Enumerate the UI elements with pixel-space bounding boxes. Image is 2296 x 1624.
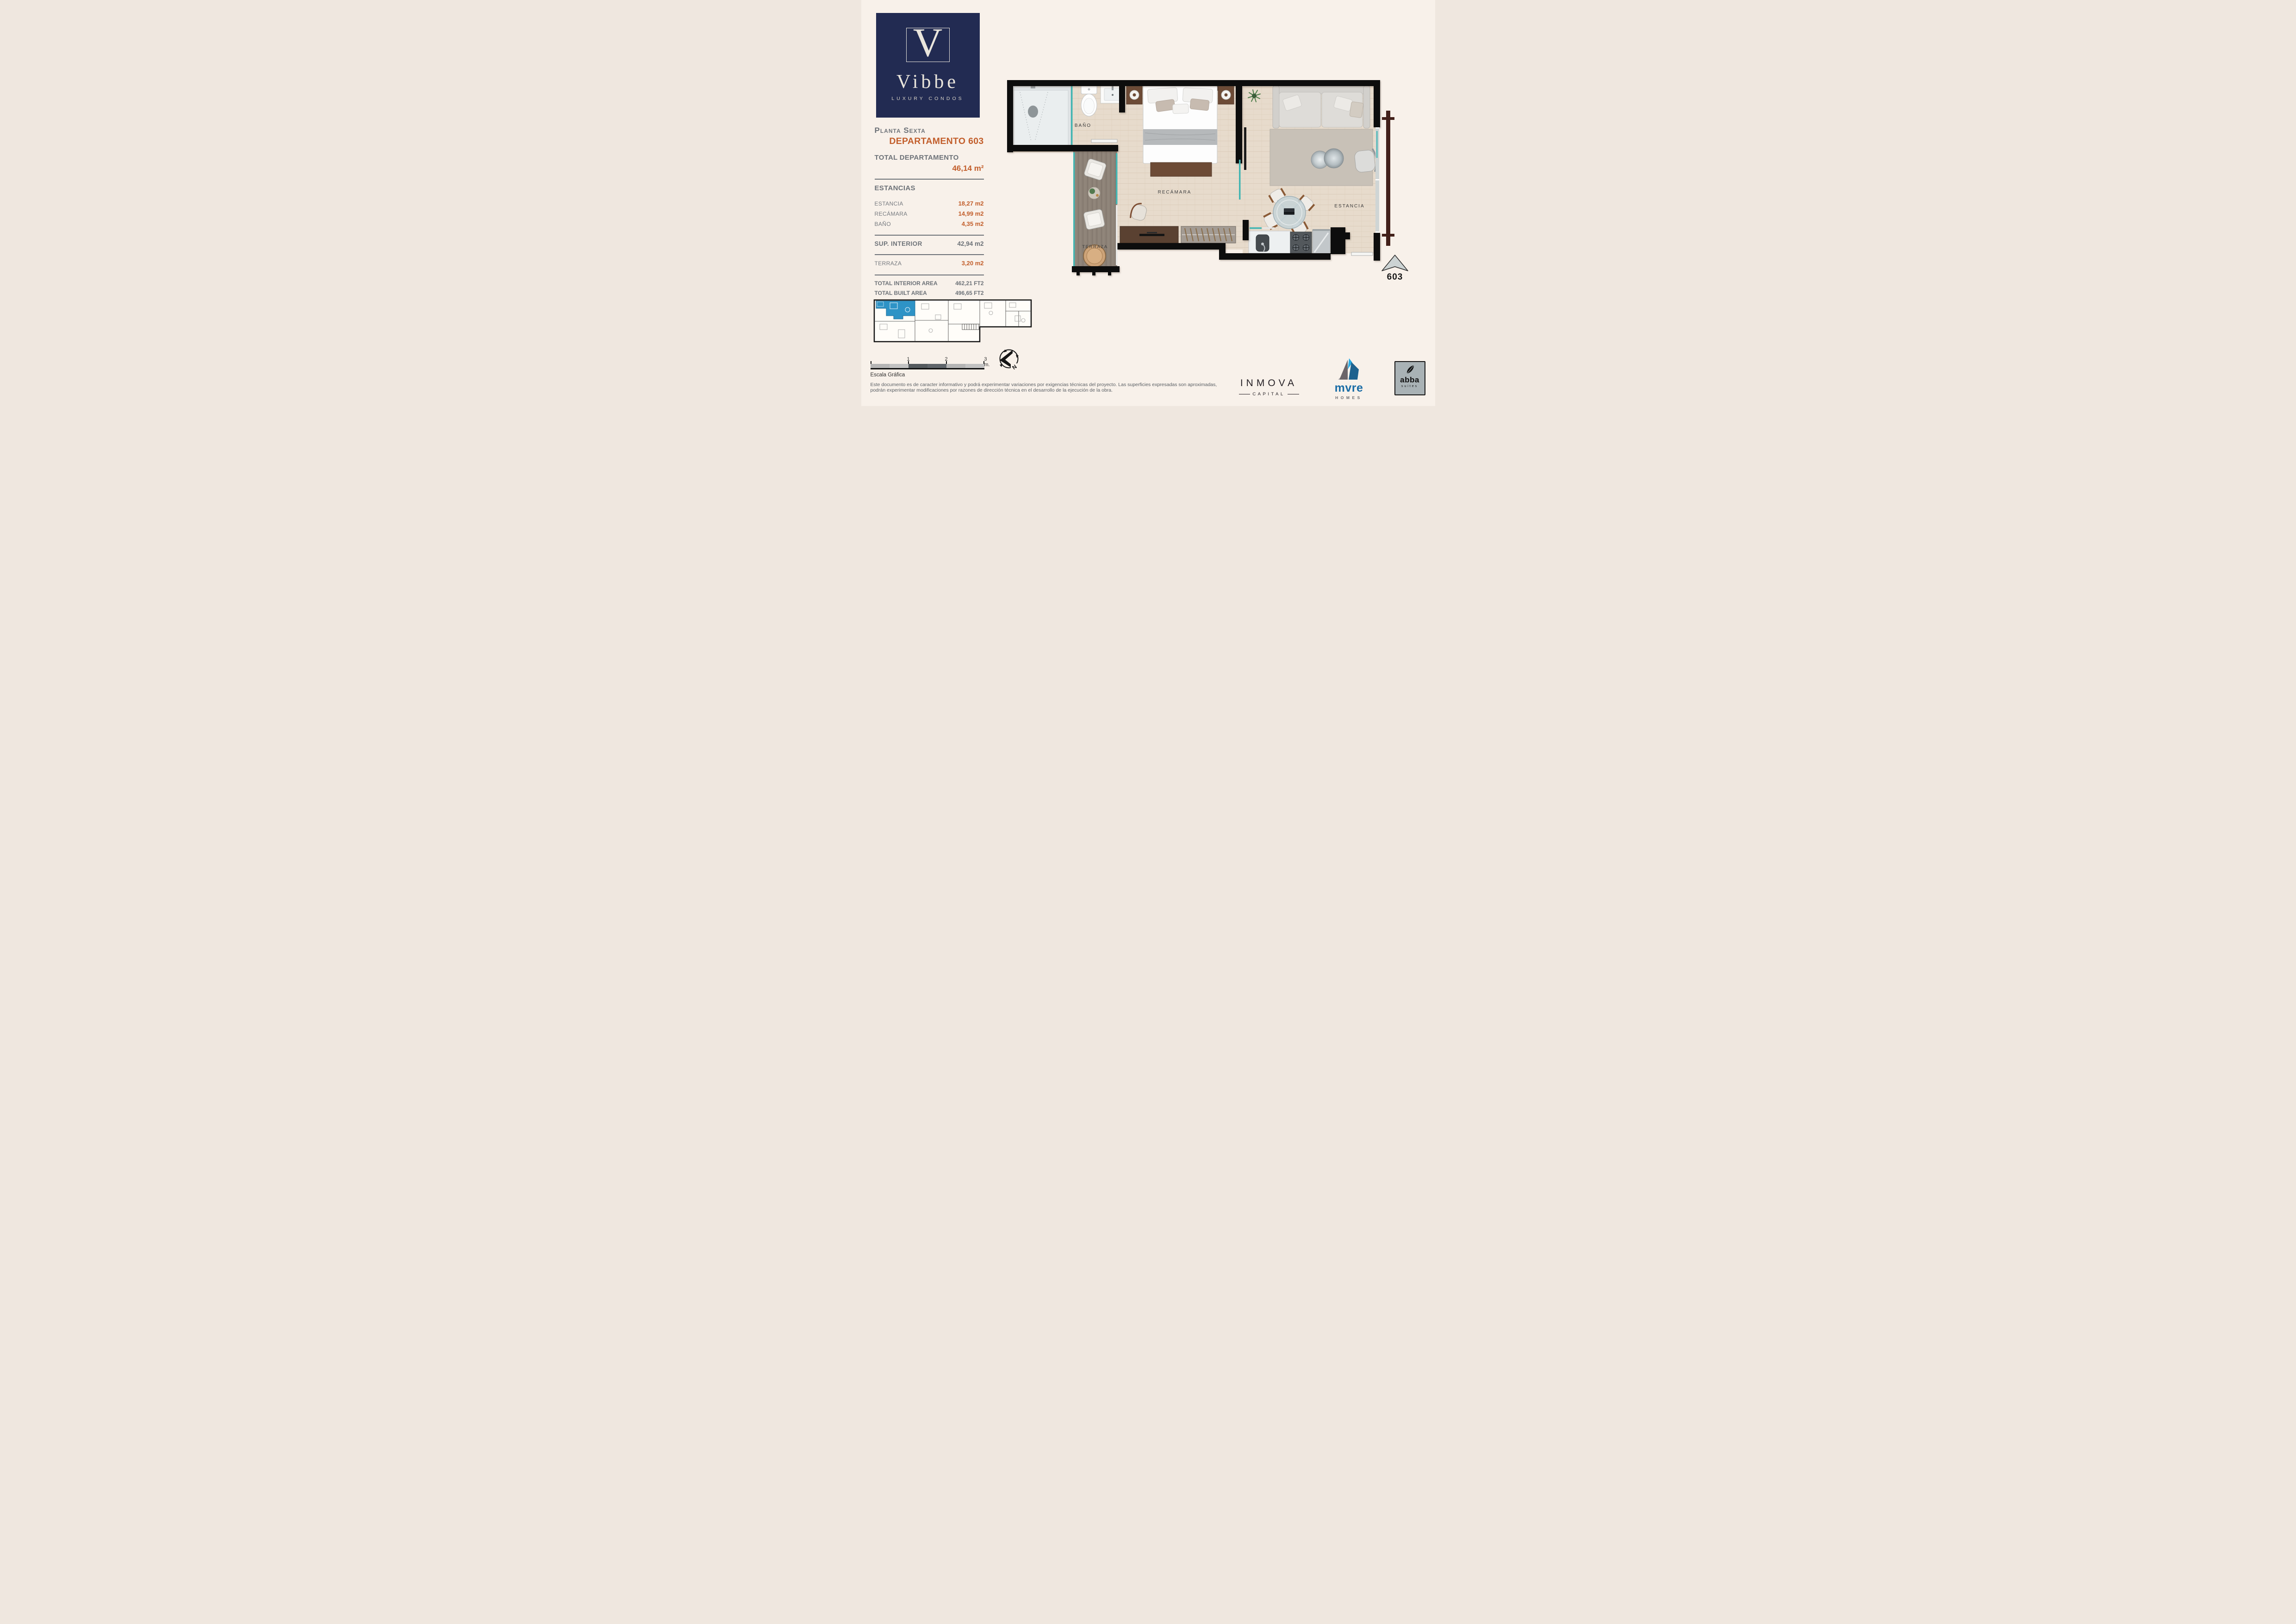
room-label-bano: BAÑO bbox=[1074, 122, 1091, 128]
room-area-row: ESTANCIA 18,27 m2 bbox=[875, 200, 984, 207]
room-value: 4,35 m2 bbox=[962, 220, 984, 227]
shower bbox=[1011, 86, 1073, 150]
brand-monogram-v: V bbox=[913, 23, 943, 63]
total-interior-label: TOTAL INTERIOR AREA bbox=[875, 280, 938, 287]
terraza-row: TERRAZA 3,20 m2 bbox=[875, 260, 984, 267]
scale-caption: Escala Gráfica bbox=[871, 372, 905, 378]
nightstand bbox=[1126, 86, 1142, 104]
sections-header: ESTANCIAS bbox=[875, 184, 984, 192]
room-label: BAÑO bbox=[875, 221, 891, 227]
inmova-capital-logo: INMOVA CAPITAL bbox=[1239, 378, 1299, 397]
total-area-row: TOTAL INTERIOR AREA 462,21 FT2 bbox=[875, 280, 984, 287]
divider bbox=[875, 179, 984, 180]
inmova-sub: CAPITAL bbox=[1252, 392, 1285, 397]
room-label-terraza: TERRAZA bbox=[1082, 244, 1108, 250]
floorplan-sheet: V Vibbe LUXURY CONDOS Planta Sexta DEPAR… bbox=[861, 0, 1435, 406]
unit-number: 603 bbox=[1387, 272, 1403, 280]
mvre-peaks-icon bbox=[1334, 358, 1364, 380]
compass-icon: N bbox=[998, 348, 1020, 369]
brand-name: Vibbe bbox=[896, 72, 959, 92]
bed bbox=[1143, 85, 1226, 176]
inmova-name: INMOVA bbox=[1239, 378, 1299, 389]
brand-tagline: LUXURY CONDOS bbox=[891, 96, 964, 101]
room-value: 18,27 m2 bbox=[958, 200, 984, 207]
terraza-value: 3,20 m2 bbox=[962, 260, 984, 267]
room-label: RECÁMARA bbox=[875, 211, 908, 217]
abba-sub: suites bbox=[1401, 385, 1418, 388]
scale-tick-label: 3 m. bbox=[984, 356, 989, 368]
room-label: ESTANCIA bbox=[875, 200, 903, 207]
closet bbox=[1181, 226, 1236, 243]
mvre-sub: HOMES bbox=[1330, 395, 1369, 400]
sup-interior-label: SUP. INTERIOR bbox=[875, 240, 922, 247]
balcony-railing bbox=[1382, 111, 1394, 246]
sup-interior-value: 42,94 m2 bbox=[957, 240, 983, 247]
room-area-row: BAÑO 4,35 m2 bbox=[875, 220, 984, 227]
tv-panel bbox=[1244, 127, 1246, 170]
floor-plan: BAÑO RECÁMARA ESTANCIA TERRAZA 603 bbox=[1003, 72, 1417, 280]
floor-title: Planta Sexta bbox=[875, 126, 984, 135]
dresser-tv bbox=[1120, 226, 1178, 243]
divider bbox=[875, 254, 984, 255]
toilet bbox=[1081, 85, 1097, 116]
total-interior-value: 462,21 FT2 bbox=[955, 280, 983, 287]
abba-leaf-icon bbox=[1404, 364, 1416, 375]
room-value: 14,99 m2 bbox=[958, 210, 984, 217]
brand-logo: V Vibbe LUXURY CONDOS bbox=[876, 13, 980, 118]
disclaimer: Este documento es de caracter informativ… bbox=[871, 382, 1237, 393]
terraza-side-table bbox=[1088, 187, 1100, 199]
mvre-homes-logo: mvre HOMES bbox=[1330, 358, 1369, 400]
spec-panel: Planta Sexta DEPARTAMENTO 603 TOTAL DEPA… bbox=[875, 126, 984, 296]
rule-line bbox=[1288, 394, 1299, 395]
total-label: TOTAL DEPARTAMENTO bbox=[875, 154, 984, 162]
entry-door bbox=[1351, 252, 1373, 256]
unit-title: DEPARTAMENTO 603 bbox=[875, 136, 984, 147]
unit-entry-marker: 603 bbox=[1382, 255, 1408, 280]
total-built-label: TOTAL BUILT AREA bbox=[875, 290, 927, 296]
balcony-window bbox=[1375, 127, 1379, 233]
terraza-armchair bbox=[1083, 209, 1105, 230]
abba-name: abba bbox=[1400, 376, 1419, 384]
total-area-row: TOTAL BUILT AREA 496,65 FT2 bbox=[875, 290, 984, 296]
room-label-estancia: ESTANCIA bbox=[1334, 204, 1364, 209]
room-label-recamara: RECÁMARA bbox=[1157, 189, 1191, 195]
nightstand bbox=[1218, 86, 1234, 104]
sup-interior-row: SUP. INTERIOR 42,94 m2 bbox=[875, 240, 984, 247]
entry-arrow-icon bbox=[1382, 255, 1408, 271]
key-plan bbox=[871, 297, 1035, 344]
brand-monogram-frame: V bbox=[906, 28, 950, 62]
mvre-name: mvre bbox=[1330, 382, 1369, 394]
scale-bar: 1 2 3 m. bbox=[871, 356, 984, 370]
total-value: 46,14 m² bbox=[875, 164, 984, 173]
room-area-row: RECÁMARA 14,99 m2 bbox=[875, 210, 984, 217]
terraza-label: TERRAZA bbox=[875, 260, 902, 267]
kitchen bbox=[1249, 229, 1330, 254]
disclaimer-line: Este documento es de caracter informativ… bbox=[871, 382, 1237, 388]
total-built-value: 496,65 FT2 bbox=[955, 290, 983, 296]
divider bbox=[875, 235, 984, 236]
rule-line bbox=[1239, 394, 1251, 395]
bathroom-door bbox=[1091, 139, 1117, 143]
abba-suites-logo: abba suites bbox=[1394, 361, 1425, 395]
disclaimer-line: podrán experimentar modificaciones por r… bbox=[871, 388, 1237, 394]
divider bbox=[875, 275, 984, 275]
room-area-list: ESTANCIA 18,27 m2 RECÁMARA 14,99 m2 BAÑO… bbox=[875, 200, 984, 227]
